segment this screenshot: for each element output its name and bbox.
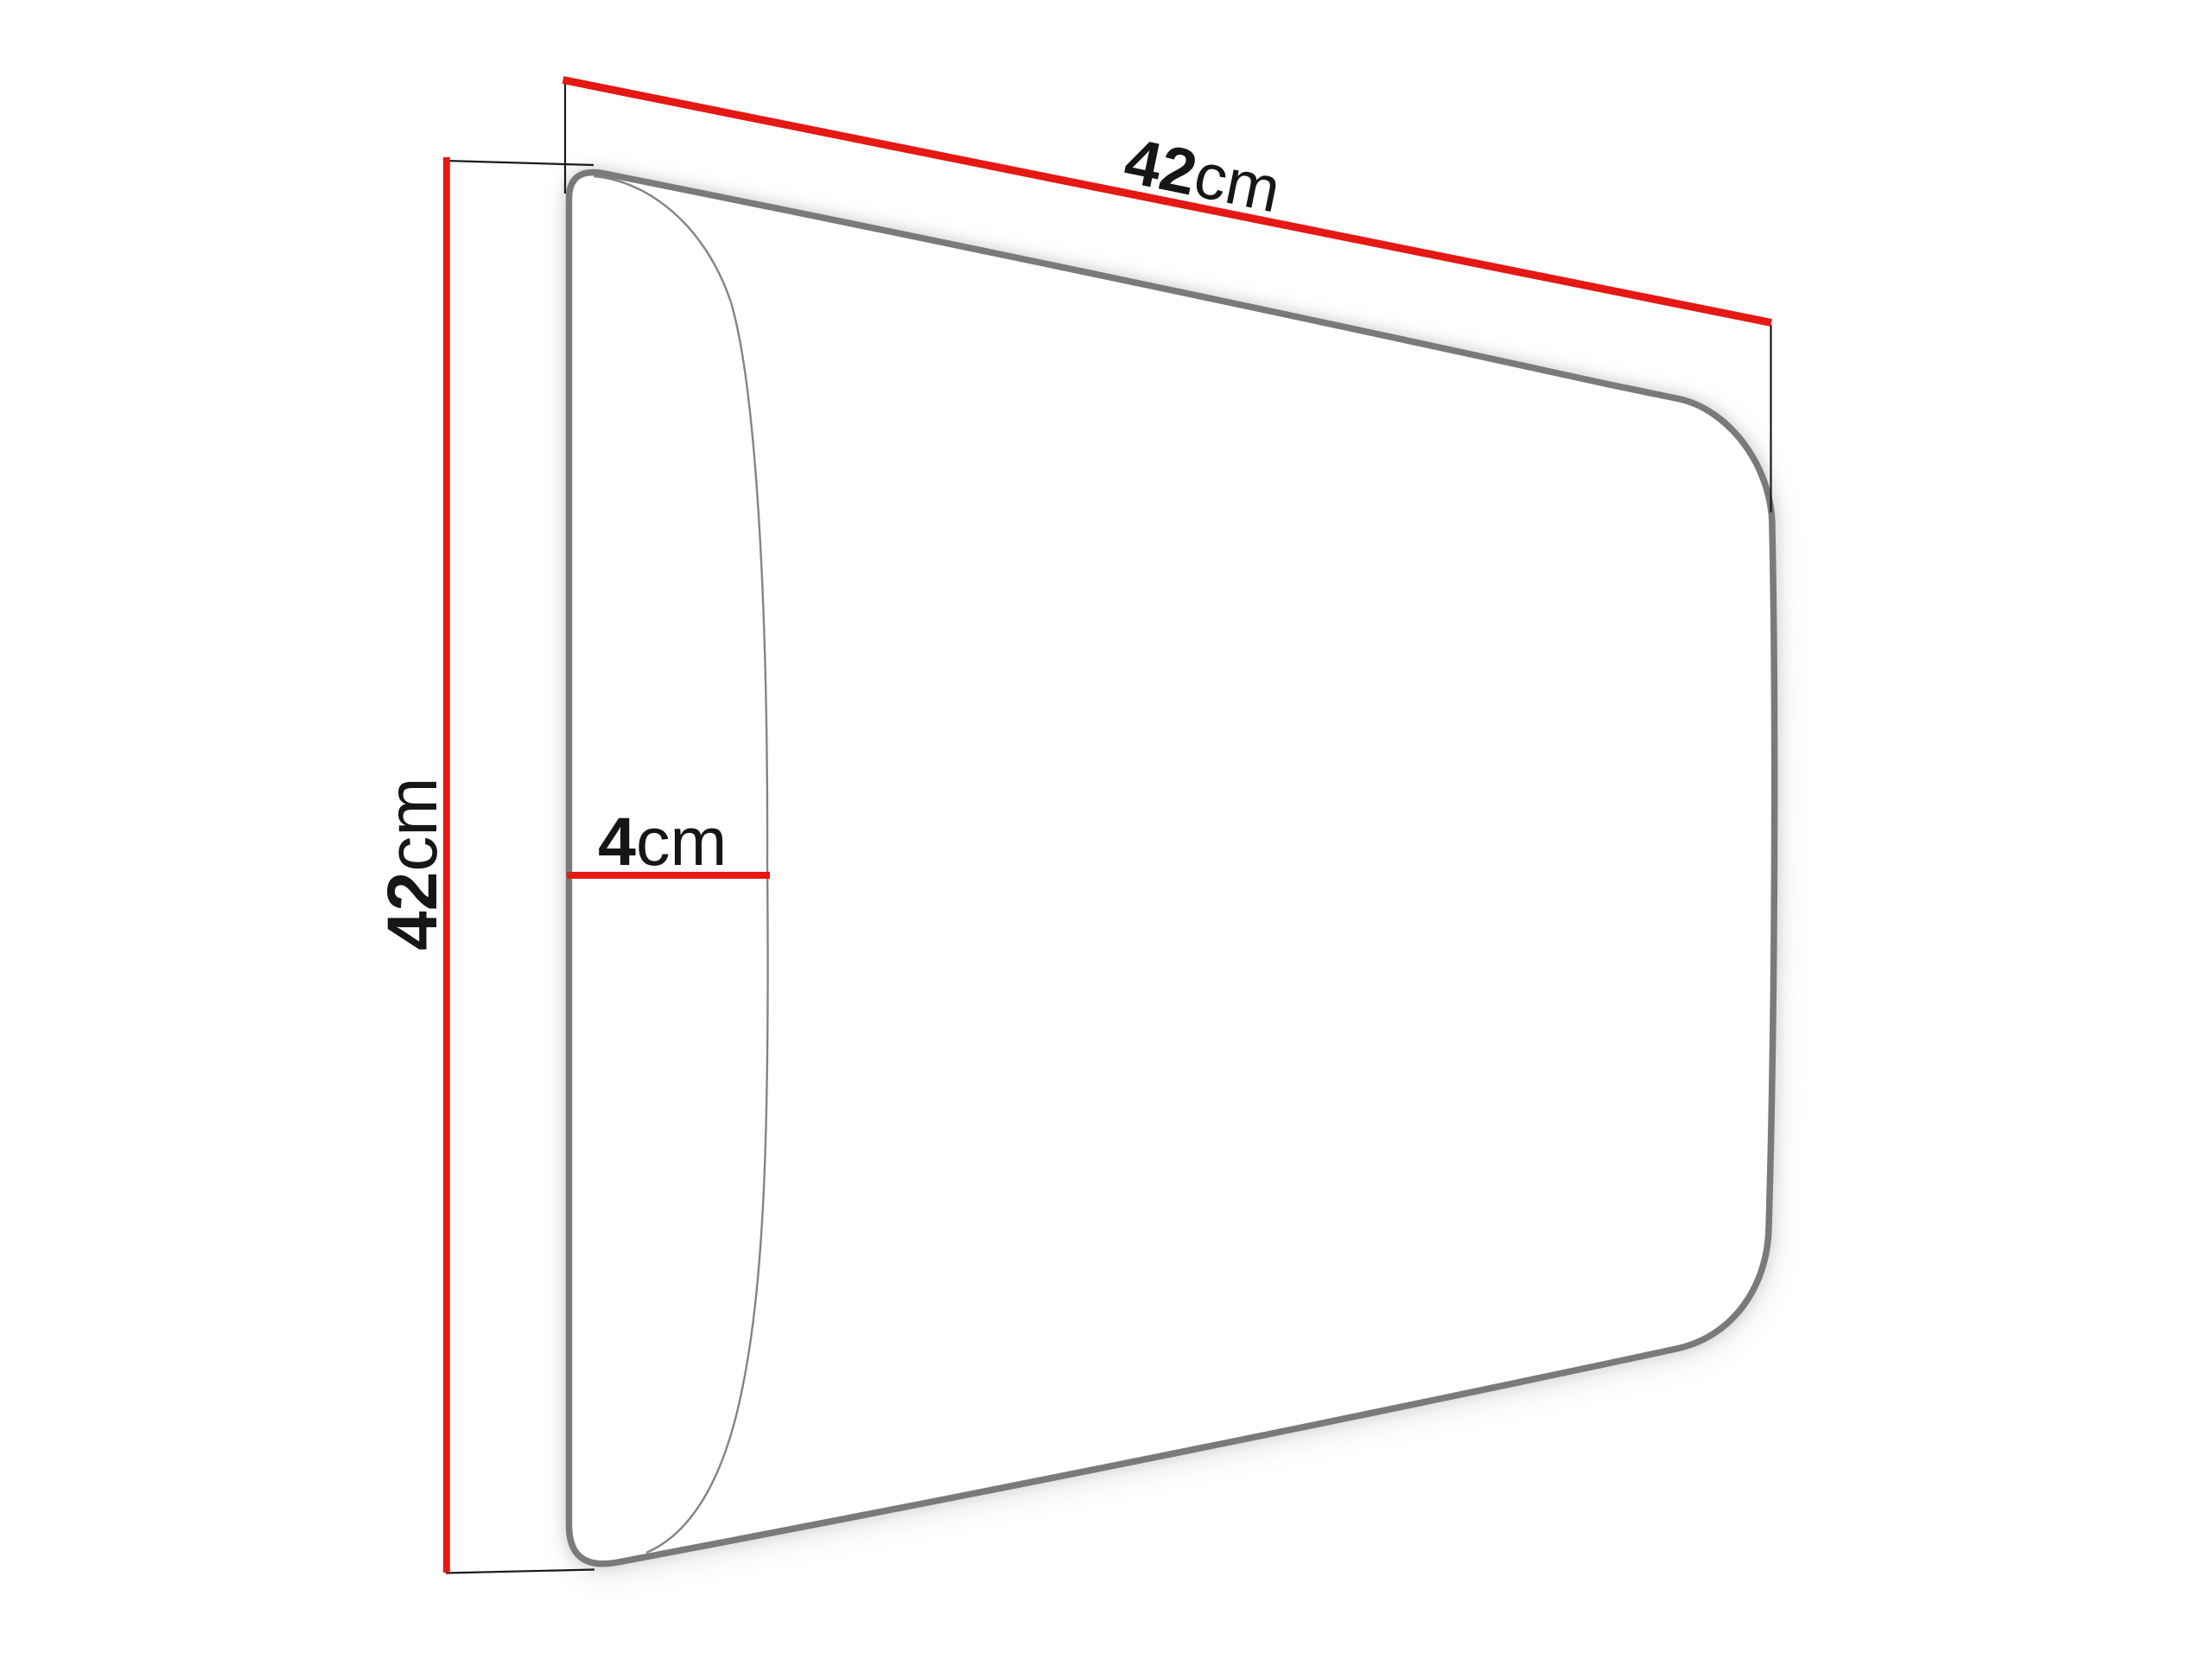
svg-text:42cm: 42cm <box>373 777 452 950</box>
svg-text:4cm: 4cm <box>598 803 727 880</box>
svg-text:42cm: 42cm <box>1119 124 1287 226</box>
